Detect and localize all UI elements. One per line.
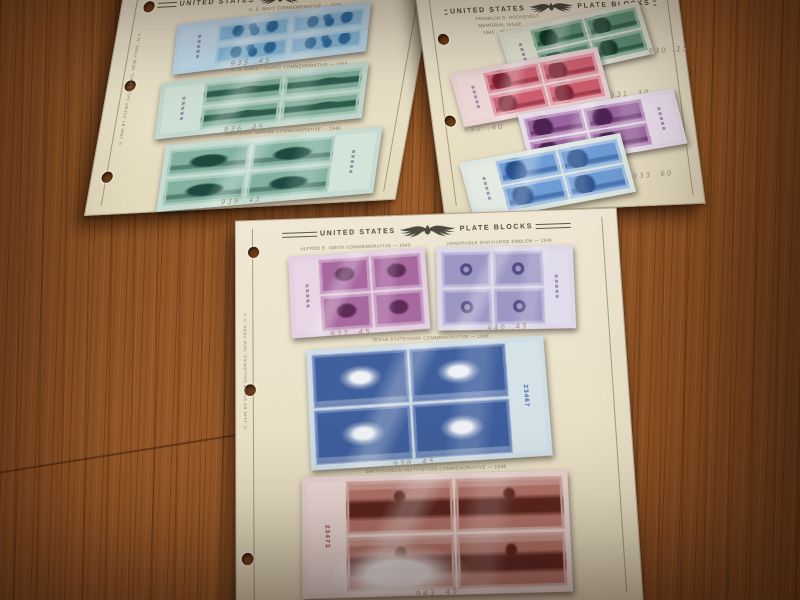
stamp-block [465, 139, 630, 216]
pencil-note: 940 .45 [487, 322, 529, 333]
plate-number-mark [180, 97, 186, 121]
pencil-note: 932 .40 [463, 123, 505, 134]
stamp [345, 479, 454, 536]
stamp [319, 257, 371, 295]
header-rule [653, 0, 656, 5]
selvage-margin [293, 260, 322, 333]
selvage-margin [327, 132, 376, 192]
eagle-emblem [398, 222, 457, 239]
stamp [314, 404, 414, 464]
selvage-margin [543, 250, 571, 324]
album-page-right: UNITED STATES PLATE BLOCKS FRANKLIN D. R… [410, 0, 706, 215]
binder-hole [101, 171, 114, 183]
stamp-block [178, 7, 366, 70]
header-rule [282, 232, 317, 238]
page-margin-rule [601, 217, 627, 593]
stamp [493, 251, 544, 287]
photo-scene: UNITED STATES PLATE BLOCKS © 1946 BY STA… [0, 0, 800, 600]
plate-number-mark [471, 85, 480, 109]
header-united-states: UNITED STATES [320, 228, 396, 238]
album-page-left: UNITED STATES PLATE BLOCKS © 1946 BY STA… [84, 0, 444, 216]
stamp-block [293, 253, 425, 333]
series-caption-line: MEMORIAL ISSUE [478, 21, 522, 28]
publisher-imprint: © 1946 BY STAMP GALLERIES, NEW YORK, N.Y… [242, 312, 248, 430]
stamp [246, 165, 332, 199]
page-margin-rule [424, 0, 457, 205]
pencil-note: 933 .60 [632, 169, 674, 180]
stamp-block [162, 132, 377, 207]
plate-number-mark [349, 150, 355, 174]
header-united-states: UNITED STATES [179, 0, 256, 7]
header-rule [157, 1, 177, 7]
plate-number-mark [306, 284, 310, 309]
plate-block-merchant-marine-1946 [156, 127, 382, 212]
stamp [441, 251, 492, 287]
plate-block-smithsonian: 23473 [302, 470, 573, 599]
binder-hole [437, 34, 449, 45]
stamps-grid [214, 7, 365, 65]
stamps-grid [312, 343, 513, 465]
plate-number: 23473 [323, 525, 330, 549]
selvage-margin [178, 25, 219, 70]
plate-block-honorable-discharge [436, 245, 576, 331]
plate-number-mark [482, 177, 491, 201]
header-rule [444, 9, 447, 14]
stamps-grid [200, 67, 364, 130]
selvage-margin: 23473 [307, 482, 347, 594]
page-margin-rule [252, 229, 255, 600]
pencil-note: 943 .45 [416, 587, 460, 599]
stamp [346, 534, 456, 592]
table-seam [0, 431, 256, 475]
plate-number-mark [195, 35, 201, 59]
stamps-grid [319, 253, 425, 331]
plate-block-texas-statehood: 23467 [306, 335, 552, 470]
binder-hole [248, 247, 259, 258]
plate-number: 23467 [522, 385, 530, 408]
stamp [321, 293, 373, 331]
plate-number-mark [555, 274, 559, 298]
pencil-note: 930 .25 [648, 44, 690, 55]
binder-hole [143, 1, 156, 13]
stamps-grid [441, 251, 545, 326]
stamp [494, 288, 545, 325]
stamp [409, 343, 508, 402]
binder-hole [242, 553, 254, 566]
eagle-emblem [528, 0, 576, 14]
plate-number-mark [657, 107, 666, 131]
stamp [457, 531, 568, 589]
stamp [412, 398, 512, 458]
stamps-grid [345, 476, 567, 592]
stamp-block: 23473 [307, 476, 568, 593]
header-rule [536, 223, 571, 229]
stamp [370, 253, 422, 291]
binder-hole [444, 115, 456, 126]
stamp [373, 289, 425, 327]
album-page-center: UNITED STATES PLATE BLOCKS © 1946 BY STA… [235, 207, 644, 600]
stamp-block: 23467 [312, 341, 548, 465]
selvage-margin [160, 84, 205, 134]
stamp [312, 349, 411, 408]
header-plate-blocks: PLATE BLOCKS [460, 223, 534, 233]
stamps-grid [495, 139, 630, 211]
header-united-states: UNITED STATES [450, 5, 526, 15]
stamp [455, 476, 565, 533]
stamp [442, 289, 493, 326]
stamp-block [441, 250, 571, 325]
plate-block-alfred-smith [288, 248, 430, 339]
